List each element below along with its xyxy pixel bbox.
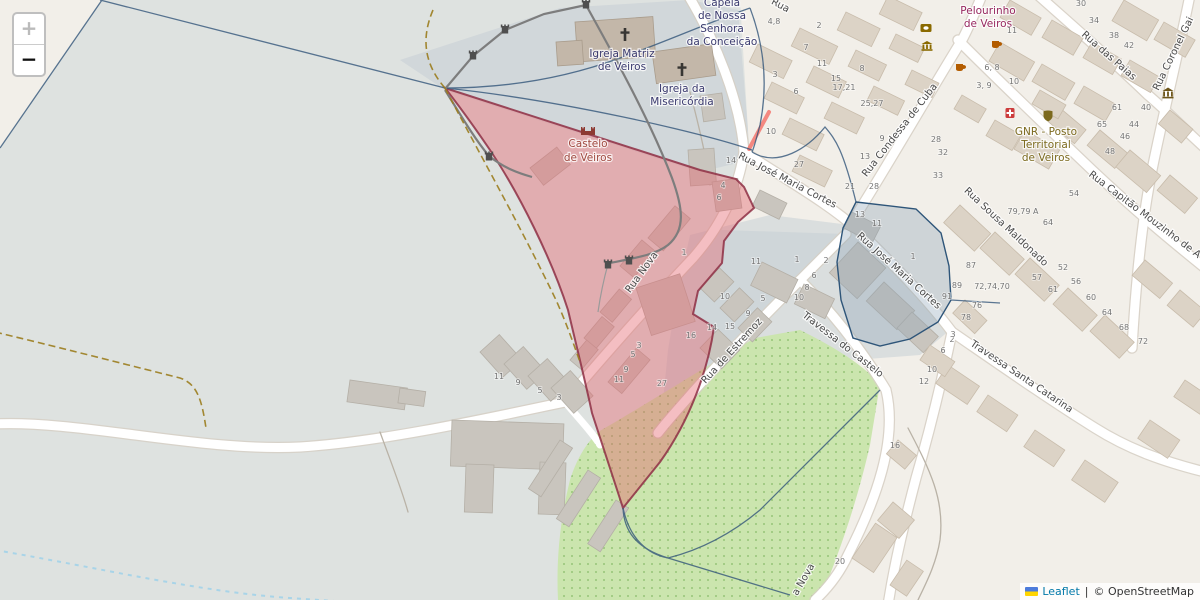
svg-text:de Nossa: de Nossa: [698, 10, 746, 22]
poi-label-misericordia: Igreja da Misericórdia: [650, 83, 714, 108]
leaflet-link[interactable]: Leaflet: [1042, 585, 1079, 598]
poi-label-gnr: GNR - Posto Territorial de Veiros: [1015, 126, 1077, 164]
housenumber: 10: [766, 127, 776, 136]
housenumber: 28: [931, 135, 941, 144]
svg-text:de Veiros: de Veiros: [1022, 152, 1070, 164]
housenumber: 33: [933, 171, 943, 180]
housenumber: 64: [1102, 308, 1112, 317]
svg-text:Castelo: Castelo: [568, 138, 607, 150]
housenumber: 44: [1129, 120, 1139, 129]
svg-text:Igreja Matriz: Igreja Matriz: [589, 48, 655, 60]
housenumber: 7: [803, 43, 808, 52]
housenumber: 3: [950, 330, 955, 339]
housenumber: 12: [919, 377, 929, 386]
housenumber: 72: [1138, 337, 1148, 346]
housenumber: 20: [835, 557, 845, 566]
housenumber: 25,27: [861, 99, 884, 108]
svg-text:Igreja da: Igreja da: [659, 83, 705, 95]
housenumber: 11: [1007, 26, 1017, 35]
housenumber: 76: [972, 301, 982, 310]
housenumber: 1: [681, 248, 686, 257]
housenumber: 48: [1105, 147, 1115, 156]
housenumber: 21: [845, 182, 855, 191]
housenumber: 78: [961, 313, 971, 322]
housenumber: 8: [804, 283, 809, 292]
housenumber: 6, 8: [984, 63, 999, 72]
housenumber: 30: [1076, 0, 1086, 8]
housenumber: 11: [751, 257, 761, 266]
svg-text:Misericórdia: Misericórdia: [650, 96, 714, 108]
zoom-in-button[interactable]: +: [14, 14, 44, 45]
housenumber: 10: [1009, 77, 1019, 86]
svg-text:Senhora: Senhora: [700, 23, 744, 35]
map-canvas[interactable]: Rua Nova Rua José Maria Cortes Rua José …: [0, 0, 1200, 600]
attribution-separator: |: [1085, 585, 1089, 598]
street-label: Rua: [769, 0, 791, 15]
map-container[interactable]: Rua Nova Rua José Maria Cortes Rua José …: [0, 0, 1200, 600]
housenumber: 61: [1112, 103, 1122, 112]
housenumber: 3: [636, 341, 641, 350]
housenumber: 1: [910, 252, 915, 261]
housenumber: 9: [745, 309, 750, 318]
housenumber: 16: [890, 441, 900, 450]
poi-label-igreja-matriz: Igreja Matriz de Veiros: [589, 48, 655, 73]
pharmacy-icon: [1006, 108, 1015, 118]
svg-text:de Veiros: de Veiros: [598, 61, 646, 73]
svg-text:Capela: Capela: [704, 0, 740, 9]
housenumber: 68: [1119, 323, 1129, 332]
housenumber: 14: [707, 323, 717, 332]
zoom-control: + −: [12, 12, 46, 77]
housenumber: 10: [927, 365, 937, 374]
housenumber: 9: [879, 134, 884, 143]
housenumber: 91: [942, 292, 952, 301]
housenumber: 5: [537, 386, 542, 395]
housenumber: 8: [859, 64, 864, 73]
housenumber: 5: [630, 350, 635, 359]
zoom-out-button[interactable]: −: [14, 45, 44, 75]
housenumber: 13: [860, 152, 870, 161]
housenumber: 87: [966, 261, 976, 270]
attribution-bar: Leaflet | © OpenStreetMap: [1020, 583, 1200, 600]
housenumber: 15: [725, 322, 735, 331]
housenumber: 11: [494, 372, 504, 381]
housenumber: 60: [1086, 293, 1096, 302]
housenumber: 10: [720, 292, 730, 301]
housenumber: 32: [938, 148, 948, 157]
housenumber: 4: [720, 181, 725, 190]
housenumber: 13: [855, 210, 865, 219]
housenumber: 79,79 A: [1008, 207, 1039, 216]
housenumber: 2: [816, 21, 821, 30]
housenumber: 38: [1109, 31, 1119, 40]
housenumber: 5: [760, 294, 765, 303]
ukraine-flag-icon: [1025, 587, 1038, 596]
housenumber: 46: [1120, 132, 1130, 141]
housenumber: 57: [1032, 273, 1042, 282]
housenumber: 6: [793, 87, 798, 96]
housenumber: 56: [1071, 277, 1081, 286]
svg-text:Pelourinho: Pelourinho: [960, 5, 1015, 17]
housenumber: 27: [794, 160, 804, 169]
housenumber: 6: [940, 346, 945, 355]
housenumber: 1: [794, 255, 799, 264]
housenumber: 6: [716, 193, 721, 202]
housenumber: 40: [1141, 103, 1151, 112]
housenumber: 52: [1058, 263, 1068, 272]
bank-icon: [922, 41, 933, 51]
openstreetmap-link[interactable]: © OpenStreetMap: [1093, 585, 1194, 598]
housenumber: 4,8: [768, 17, 781, 26]
housenumber: 11: [872, 219, 882, 228]
housenumber: 6: [811, 271, 816, 280]
svg-text:GNR - Posto: GNR - Posto: [1015, 126, 1077, 138]
housenumber: 2: [823, 256, 828, 265]
housenumber: 16: [686, 331, 696, 340]
housenumber: 42: [1124, 41, 1134, 50]
housenumber: 89: [952, 281, 962, 290]
housenumber: 65: [1097, 120, 1107, 129]
housenumber: 61: [1048, 285, 1058, 294]
housenumber: 27: [657, 379, 667, 388]
housenumber: 64: [1043, 218, 1053, 227]
housenumber: 28: [869, 182, 879, 191]
atm-icon: [921, 24, 932, 32]
svg-text:de Veiros: de Veiros: [564, 152, 612, 164]
housenumber: 3: [556, 393, 561, 402]
housenumber: 11: [614, 375, 624, 384]
housenumber: 34: [1089, 16, 1099, 25]
housenumber: 17,21: [833, 83, 856, 92]
svg-text:da Conceição: da Conceição: [687, 36, 758, 48]
housenumber: 54: [1069, 189, 1079, 198]
housenumber: 3: [772, 70, 777, 79]
housenumber: 9: [623, 365, 628, 374]
svg-text:Territorial: Territorial: [1020, 139, 1071, 151]
svg-text:de Veiros: de Veiros: [964, 18, 1012, 30]
housenumber: 14: [726, 156, 736, 165]
housenumber: 9: [515, 378, 520, 387]
housenumber: 72,74,70: [974, 282, 1010, 291]
housenumber: 11: [817, 59, 827, 68]
housenumber: 15: [831, 74, 841, 83]
housenumber: 10: [794, 293, 804, 302]
housenumber: 3, 9: [976, 81, 991, 90]
